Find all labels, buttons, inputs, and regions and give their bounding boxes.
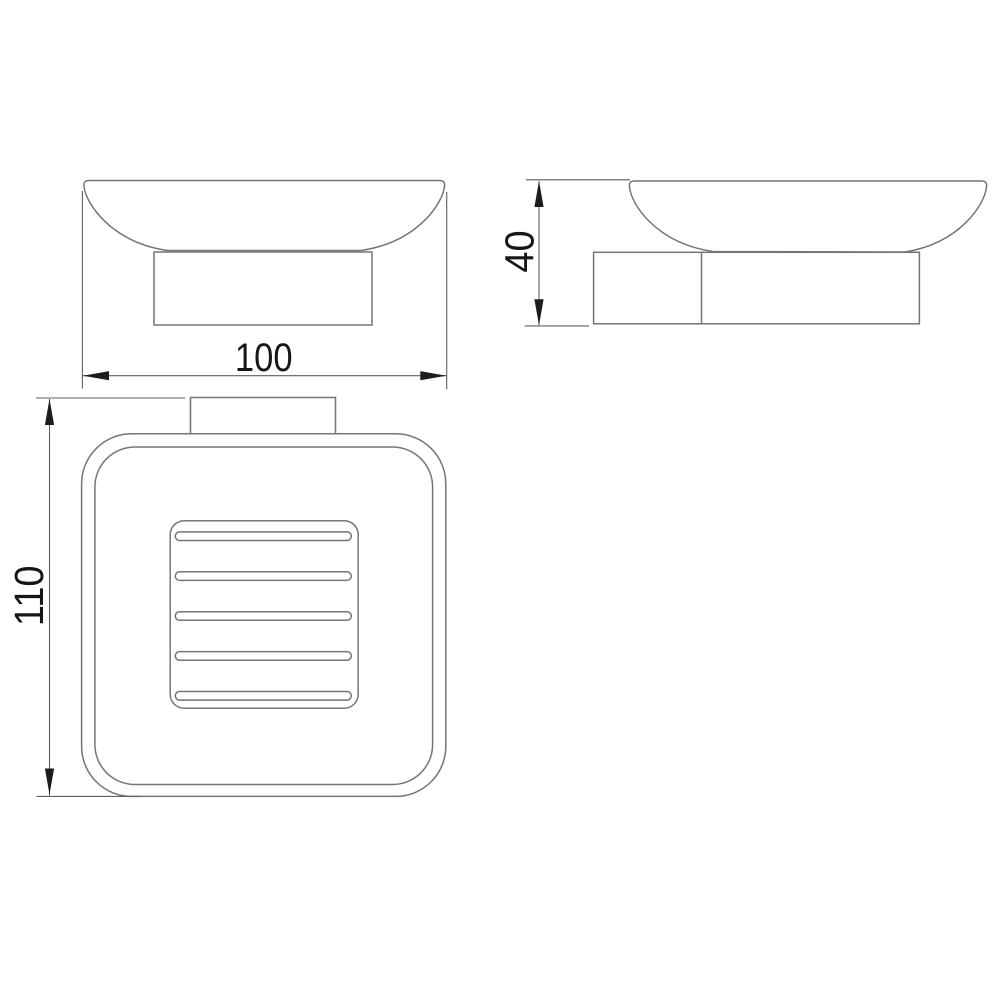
svg-text:40: 40 <box>497 230 542 272</box>
svg-text:100: 100 <box>235 335 293 380</box>
svg-text:110: 110 <box>7 565 52 626</box>
